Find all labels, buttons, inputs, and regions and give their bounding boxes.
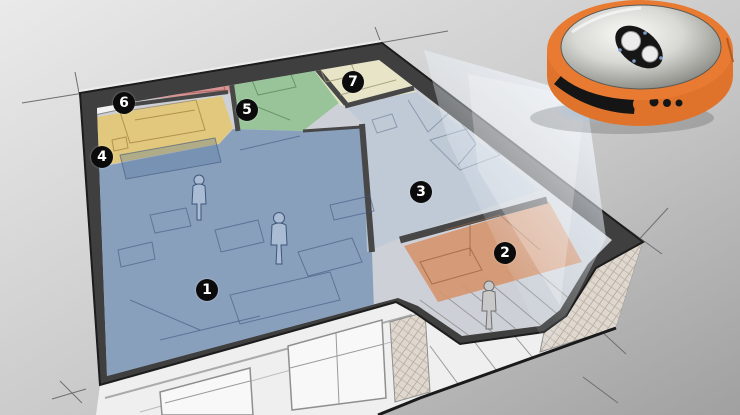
apartment-cutaway-illustration: 1 2 3 4 5 6 7 [0, 0, 740, 415]
robot-button-small [642, 46, 658, 62]
room-marker-3: 3 [410, 181, 432, 203]
room-marker-6: 6 [113, 92, 135, 114]
room-marker-1: 1 [196, 279, 218, 301]
room-marker-5: 5 [236, 99, 258, 121]
room-marker-7: 7 [342, 71, 364, 93]
room-marker-2: 2 [494, 242, 516, 264]
robot-front-dot [676, 100, 683, 107]
robot-front-dot [663, 99, 671, 107]
robot-button-large [622, 32, 641, 51]
room-marker-4: 4 [91, 146, 113, 168]
facade-brick-pier [390, 312, 430, 402]
scene-canvas [0, 0, 740, 415]
